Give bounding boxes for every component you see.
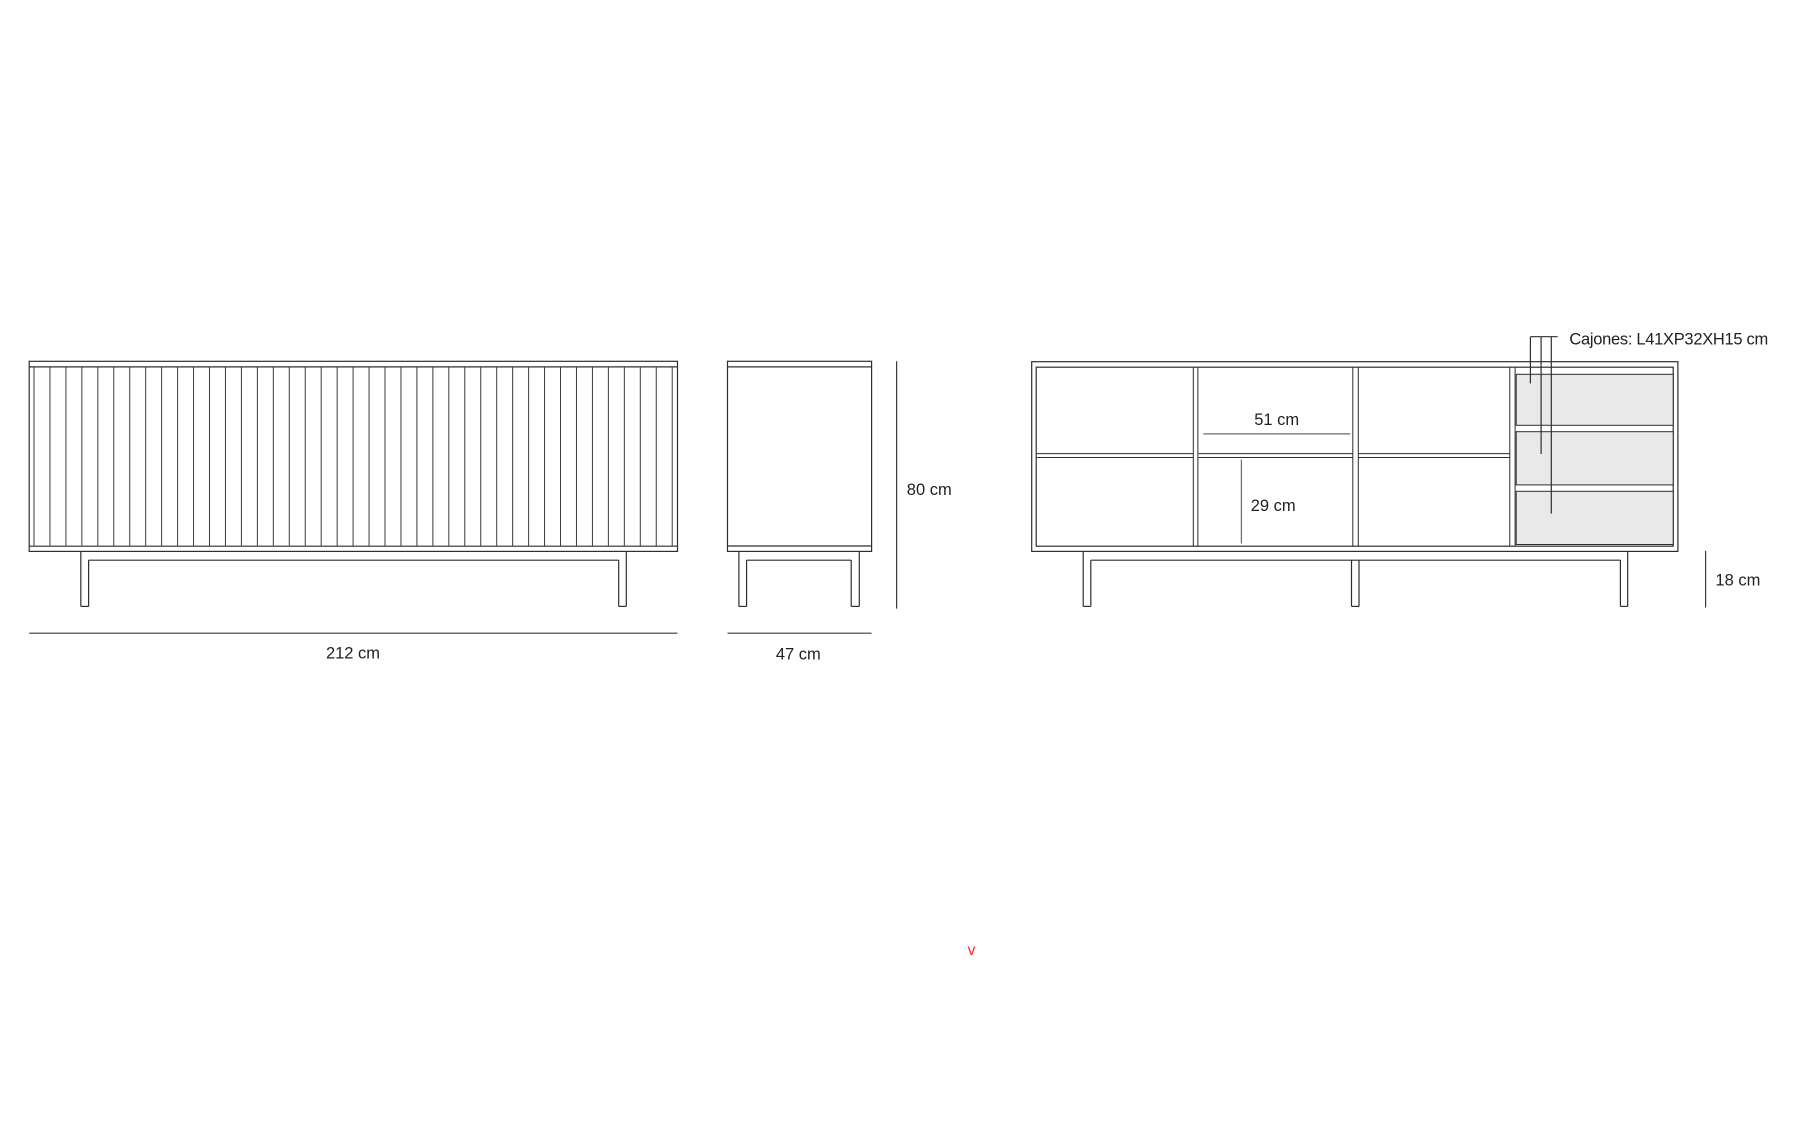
svg-text:51 cm: 51 cm xyxy=(1254,411,1299,429)
svg-text:29 cm: 29 cm xyxy=(1251,497,1296,515)
svg-text:212 cm: 212 cm xyxy=(326,645,380,663)
svg-text:80 cm: 80 cm xyxy=(907,481,952,499)
svg-text:47 cm: 47 cm xyxy=(776,646,821,664)
svg-text:18 cm: 18 cm xyxy=(1715,572,1760,590)
svg-text:v: v xyxy=(968,942,976,959)
svg-text:Cajones: L41XP32XH15 cm: Cajones: L41XP32XH15 cm xyxy=(1569,331,1768,349)
